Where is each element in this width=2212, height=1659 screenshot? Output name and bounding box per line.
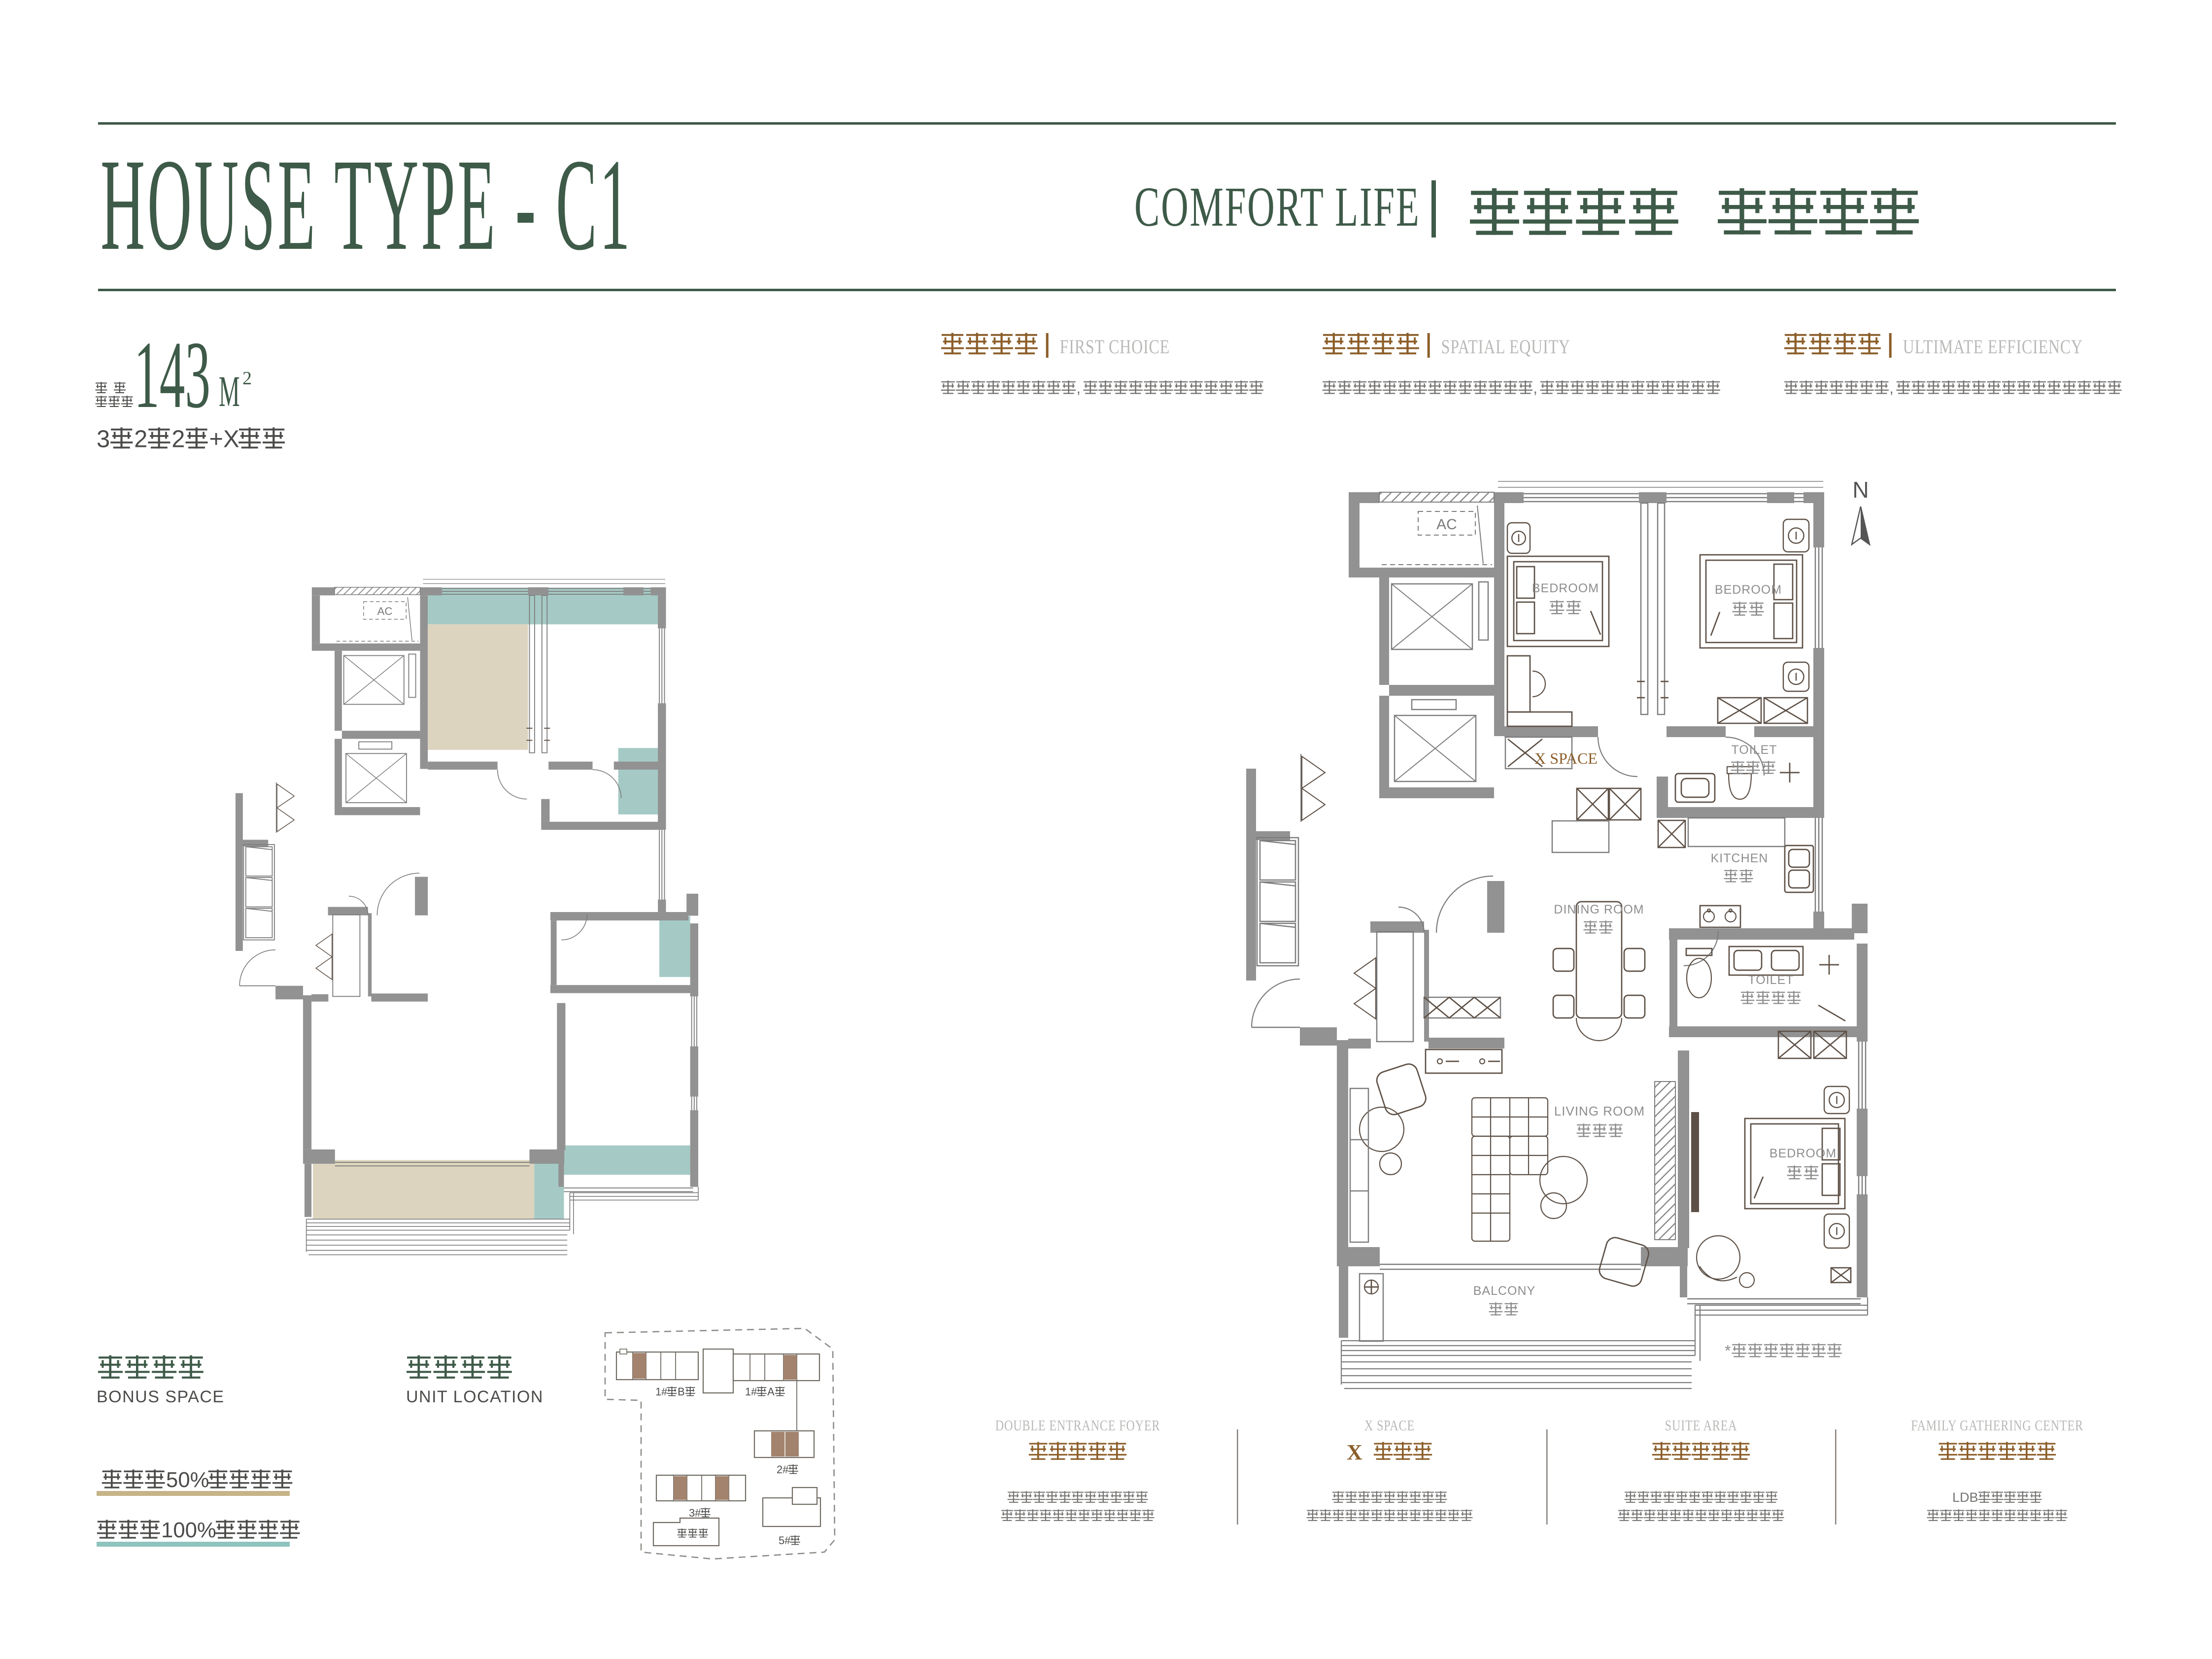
- svg-text:BEDROOM: BEDROOM: [1715, 583, 1782, 597]
- svg-text:+X: +X: [209, 426, 239, 452]
- svg-text:5#: 5#: [779, 1534, 791, 1547]
- svg-text:X: X: [1347, 1440, 1362, 1464]
- svg-text:B: B: [678, 1386, 685, 1398]
- svg-text:100%: 100%: [161, 1518, 216, 1542]
- svg-text:BONUS SPACE: BONUS SPACE: [97, 1388, 225, 1406]
- svg-text:KITCHEN: KITCHEN: [1711, 851, 1769, 865]
- svg-text:ULTIMATE EFFICIENCY: ULTIMATE EFFICIENCY: [1903, 336, 2083, 358]
- svg-text:2: 2: [134, 426, 147, 452]
- svg-text:2: 2: [171, 426, 185, 452]
- svg-text:2: 2: [242, 368, 252, 389]
- svg-text:*: *: [1725, 1342, 1731, 1360]
- svg-text:HOUSE TYPE - C1: HOUSE TYPE - C1: [101, 132, 632, 278]
- svg-text:,: ,: [1076, 379, 1081, 397]
- svg-text:1#: 1#: [655, 1386, 668, 1398]
- svg-text:BEDROOM: BEDROOM: [1532, 581, 1599, 595]
- svg-text:SPATIAL EQUITY: SPATIAL EQUITY: [1441, 336, 1570, 358]
- svg-text:BALCONY: BALCONY: [1473, 1284, 1535, 1298]
- svg-text:3#: 3#: [689, 1507, 701, 1519]
- svg-text:143: 143: [134, 321, 210, 428]
- svg-text:LDB: LDB: [1952, 1490, 1978, 1505]
- svg-text:2#: 2#: [777, 1463, 789, 1476]
- svg-text:FIRST CHOICE: FIRST CHOICE: [1060, 336, 1170, 358]
- svg-text:BEDROOM: BEDROOM: [1770, 1147, 1837, 1160]
- svg-text:DOUBLE ENTRANCE FOYER: DOUBLE ENTRANCE FOYER: [995, 1417, 1160, 1434]
- svg-text:COMFORT LIFE: COMFORT LIFE: [1134, 176, 1421, 238]
- svg-text:SUITE AREA: SUITE AREA: [1665, 1417, 1737, 1434]
- svg-text:M: M: [219, 368, 240, 416]
- svg-text:N: N: [1852, 477, 1869, 503]
- svg-text:DINING ROOM: DINING ROOM: [1554, 903, 1644, 916]
- svg-text:X SPACE: X SPACE: [1364, 1417, 1415, 1434]
- svg-text:TOILET: TOILET: [1748, 973, 1794, 987]
- svg-text:X SPACE: X SPACE: [1534, 749, 1598, 767]
- svg-text:,: ,: [1889, 379, 1894, 397]
- svg-text:1#: 1#: [745, 1386, 757, 1398]
- svg-text:TOILET: TOILET: [1731, 743, 1777, 757]
- svg-text:3: 3: [97, 426, 110, 452]
- svg-text:LIVING ROOM: LIVING ROOM: [1554, 1104, 1645, 1118]
- svg-text:,: ,: [1533, 379, 1537, 397]
- svg-text:A: A: [767, 1386, 775, 1398]
- svg-text:50%: 50%: [166, 1468, 209, 1492]
- svg-text:UNIT LOCATION: UNIT LOCATION: [406, 1388, 544, 1406]
- svg-text:FAMILY GATHERING CENTER: FAMILY GATHERING CENTER: [1911, 1417, 2083, 1434]
